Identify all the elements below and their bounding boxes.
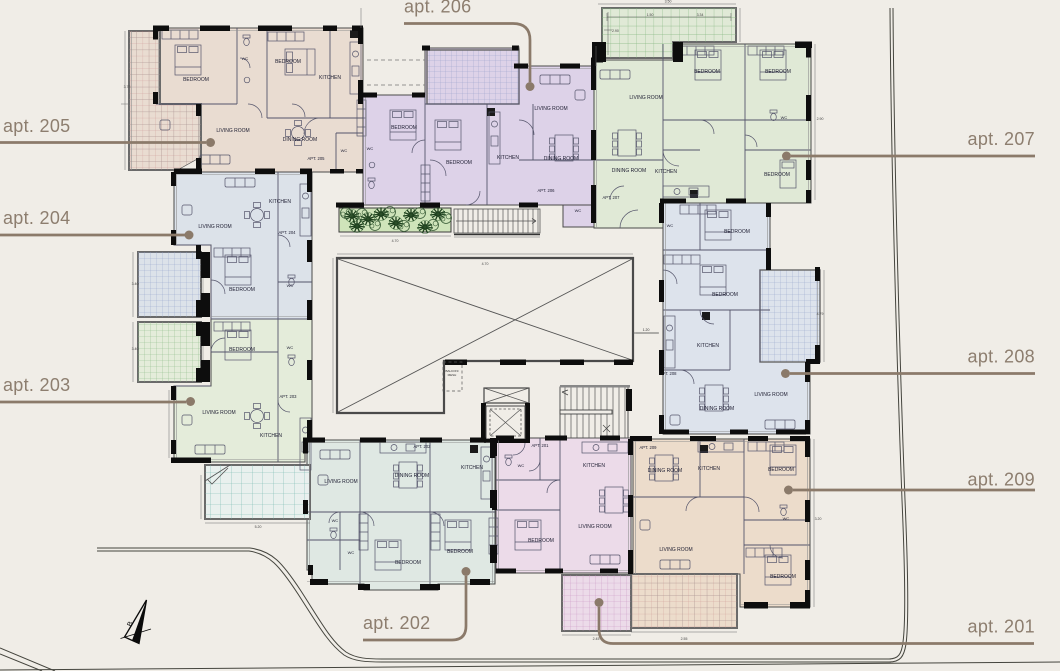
svg-text:KITCHEN: KITCHEN [655,169,677,175]
svg-text:1.20: 1.20 [643,328,650,332]
svg-text:KITCHEN: KITCHEN [319,75,341,81]
svg-text:3.40: 3.40 [132,347,139,351]
svg-text:3.40: 3.40 [132,282,139,286]
svg-text:LIVING ROOM: LIVING ROOM [534,106,567,112]
svg-text:apt. 202: apt. 202 [363,613,430,633]
svg-text:WC: WC [341,148,348,153]
svg-text:APT. 202: APT. 202 [414,444,432,449]
svg-text:BEDROOM: BEDROOM [183,77,209,83]
svg-text:DINING ROOM: DINING ROOM [283,137,317,143]
svg-text:DINING ROOM: DINING ROOM [395,473,429,479]
svg-text:apt. 207: apt. 207 [968,129,1035,149]
svg-text:BEDROOM: BEDROOM [770,574,796,580]
svg-text:APT. 205: APT. 205 [308,156,326,161]
svg-text:WC: WC [518,463,525,468]
svg-text:3.34: 3.34 [697,13,704,17]
svg-text:APT. 209: APT. 209 [640,445,658,450]
svg-text:BEDROOM: BEDROOM [229,287,255,293]
svg-text:APT. 203: APT. 203 [280,394,298,399]
svg-text:LIVING ROOM: LIVING ROOM [659,547,692,553]
svg-text:3.20: 3.20 [815,517,822,521]
svg-text:LIVING ROOM: LIVING ROOM [629,95,662,101]
svg-text:DINING ROOM: DINING ROOM [648,468,682,474]
svg-text:MESH: MESH [448,373,457,377]
svg-text:BEDROOM: BEDROOM [446,160,472,166]
svg-text:APT. 204: APT. 204 [279,230,297,235]
svg-text:apt. 203: apt. 203 [3,375,70,395]
svg-text:LIVING ROOM: LIVING ROOM [754,392,787,398]
svg-text:2.90: 2.90 [817,117,824,121]
svg-text:KITCHEN: KITCHEN [697,343,719,349]
svg-text:BEDROOM: BEDROOM [447,549,473,555]
svg-text:APT. 207: APT. 207 [603,195,621,200]
svg-text:4.70: 4.70 [392,239,399,243]
svg-text:APT. 206: APT. 206 [538,188,556,193]
svg-text:apt. 206: apt. 206 [404,0,471,17]
svg-text:4.79: 4.79 [817,312,824,316]
svg-text:BEDROOM: BEDROOM [229,347,255,353]
svg-text:WC: WC [287,345,294,350]
svg-text:KITCHEN: KITCHEN [260,433,282,439]
svg-text:BEDROOM: BEDROOM [395,560,421,566]
svg-text:LIVING ROOM: LIVING ROOM [198,224,231,230]
svg-text:BEDROOM: BEDROOM [694,69,720,75]
svg-text:BEDROOM: BEDROOM [712,292,738,298]
svg-text:WC: WC [332,518,339,523]
svg-text:apt. 208: apt. 208 [968,347,1035,367]
svg-text:5.20: 5.20 [255,525,262,529]
svg-text:WC: WC [781,115,788,120]
svg-text:LIVING ROOM: LIVING ROOM [216,128,249,134]
svg-text:1.50: 1.50 [647,13,654,17]
svg-text:WC: WC [287,283,294,288]
svg-text:BEDROOM: BEDROOM [724,229,750,235]
svg-text:3.50: 3.50 [665,0,672,4]
svg-text:WC: WC [783,516,790,521]
svg-text:apt. 204: apt. 204 [3,208,70,228]
svg-text:DINING ROOM: DINING ROOM [700,406,734,412]
svg-text:DINING ROOM: DINING ROOM [612,168,646,174]
svg-text:WC: WC [667,223,674,228]
svg-text:BEDROOM: BEDROOM [764,172,790,178]
svg-text:2.90: 2.90 [612,29,619,33]
svg-text:2.55: 2.55 [681,637,688,641]
svg-text:APT. 201: APT. 201 [532,443,550,448]
svg-text:DINING ROOM: DINING ROOM [544,156,578,162]
svg-text:BEDROOM: BEDROOM [275,59,301,65]
svg-text:KITCHEN: KITCHEN [698,466,720,472]
svg-text:WC: WC [348,550,355,555]
svg-text:KITCHEN: KITCHEN [461,465,483,471]
svg-text:LIVING ROOM: LIVING ROOM [202,410,235,416]
svg-text:apt. 201: apt. 201 [968,617,1035,637]
svg-text:KITCHEN: KITCHEN [497,155,519,161]
svg-text:BEDROOM: BEDROOM [528,538,554,544]
svg-text:BEDROOM: BEDROOM [765,69,791,75]
svg-text:2.45: 2.45 [593,637,600,641]
svg-text:WC: WC [367,146,374,151]
svg-text:BEDROOM: BEDROOM [768,467,794,473]
svg-text:apt. 209: apt. 209 [968,470,1035,490]
svg-text:KITCHEN: KITCHEN [269,199,291,205]
svg-text:apt. 205: apt. 205 [3,116,70,136]
svg-text:KITCHEN: KITCHEN [583,463,605,469]
svg-text:BEDROOM: BEDROOM [391,125,417,131]
svg-text:WC: WC [575,208,582,213]
svg-text:4.70: 4.70 [482,262,489,266]
svg-text:LIVING ROOM: LIVING ROOM [324,479,357,485]
svg-text:LIVING ROOM: LIVING ROOM [578,524,611,530]
svg-text:3.75: 3.75 [124,85,131,89]
